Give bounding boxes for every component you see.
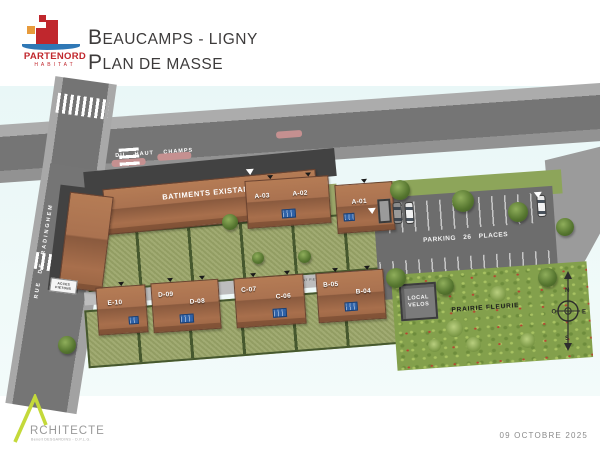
prairie-label: PRAIRIE FLEURIE [451,302,519,314]
tree-icon [58,336,76,354]
entrance-marker-icon [118,282,124,289]
building-label: D-08 [190,298,206,306]
building-a03-a02: A-03 A-02 [244,175,331,229]
entrance-marker-icon [267,175,273,182]
yield-marking-icon [534,192,542,199]
bush-icon [520,333,535,348]
traffic-island [157,152,191,161]
tree-icon [252,252,264,264]
entrance-marker-icon [167,278,173,285]
yield-marking-icon [246,169,254,176]
entrance-marker-icon [332,268,338,275]
logo-building-icon [46,20,58,44]
building-label: A-02 [292,190,308,198]
building-label: C-07 [241,286,257,294]
solar-panel-icon [282,208,297,218]
compass-e: E [582,310,586,316]
car-icon [392,202,403,225]
entrance-marker-icon [305,172,311,179]
tree-icon [452,190,474,212]
compass-n: N [565,288,569,294]
logo-brand-text: PARTENORD [14,51,96,62]
building-label: A-01 [351,198,367,206]
logo-sub-text: HABITAT [14,62,96,68]
solar-panel-icon [128,316,139,325]
partenord-logo: PARTENORD HABITAT [14,12,96,64]
building-b05-b04: B-05 B-04 [315,269,386,324]
architect-logo: RCHITECTE Benoit DESGARDINS - D.P.L.G. [10,394,120,446]
crosswalk [55,93,109,120]
title-line1: BEAUCAMPS - LIGNY [88,26,258,51]
compass-rose-icon: N O E S [551,270,587,354]
tree-icon [508,202,528,222]
solar-panel-icon [344,302,358,312]
tree-icon [386,268,406,288]
solar-panel-icon [180,313,195,323]
building-label: B-04 [355,288,371,296]
tree-icon [390,180,410,200]
entrance-marker-icon [250,273,256,280]
building-e10: E-10 [95,284,148,335]
utility-enclosure [377,199,392,224]
architect-subtitle: Benoit DESGARDINS - D.P.L.G. [31,438,91,442]
tree-icon [556,218,574,236]
logo-orange-block-icon [27,26,35,34]
bush-icon [490,286,506,302]
page-title: BEAUCAMPS - LIGNY PLAN DE MASSE [88,26,258,76]
yield-marking-icon [368,208,376,215]
entrance-marker-icon [199,276,205,283]
bike-shed-label: VELOS [408,301,430,309]
traffic-island [276,130,302,139]
tree-icon [222,214,238,230]
car-icon [536,195,547,218]
title-line2: PLAN DE MASSE [88,51,258,76]
site-plan-sheet: PARTENORD HABITAT BEAUCAMPS - LIGNY PLAN… [0,0,600,450]
compass-o: O [552,310,557,316]
solar-panel-icon [273,308,288,318]
car-icon [404,202,415,225]
bush-icon [446,320,463,337]
building-c07-c06: C-07 C-06 [233,274,306,329]
bush-icon [428,339,441,352]
building-label: C-06 [275,293,291,301]
compass-s: S [565,336,569,342]
bike-shed: LOCAL VELOS [399,282,438,321]
solar-panel-icon [343,213,355,222]
bush-icon [466,337,481,352]
logo-building-icon [39,15,46,22]
logo-wave-icon [22,44,80,50]
tree-icon [298,250,311,263]
plan-date: 09 OCTOBRE 2025 [499,431,588,440]
entrance-marker-icon [361,179,367,186]
architect-name: RCHITECTE [30,425,105,437]
building-d09-d08: D-09 D-08 [150,279,221,334]
entrance-marker-icon [364,266,370,273]
building-label: E-10 [107,299,122,307]
building-label: A-03 [254,192,270,200]
building-label: B-05 [323,281,339,289]
tree-icon [436,277,454,295]
entrance-marker-icon [284,271,290,278]
building-label: D-09 [158,291,174,299]
